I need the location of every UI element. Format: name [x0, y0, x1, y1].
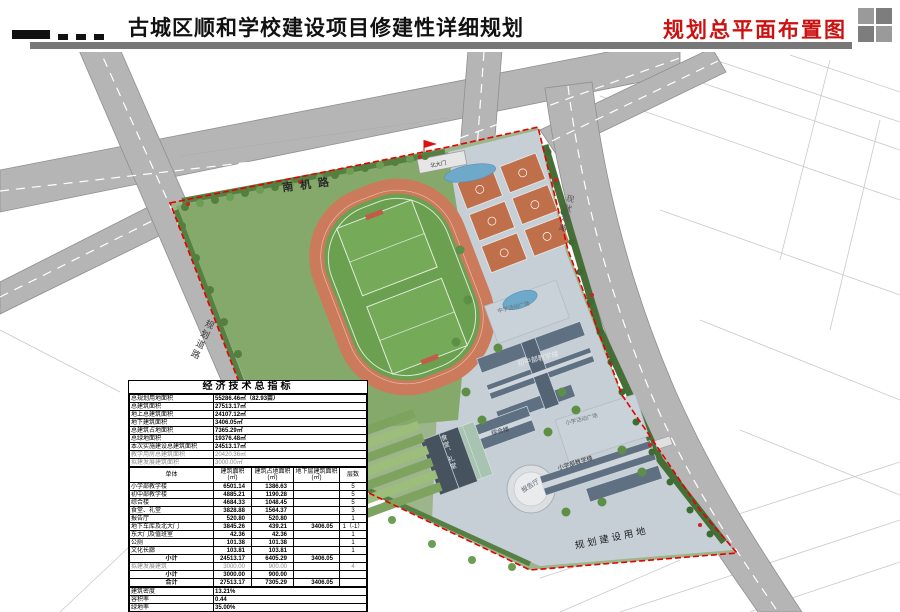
- header-corner-square: [876, 8, 892, 24]
- drawing-title: 规划总平面布置图: [663, 14, 847, 44]
- indicator-row: 地上总建筑面积 24107.12㎡: [130, 411, 367, 419]
- footer-row: 容积率 0.44: [130, 596, 367, 604]
- indicator-row: 总绿地面积 19376.48㎡: [130, 435, 367, 443]
- building-row: 食堂、礼堂 3828.88 1564.37 3: [130, 507, 367, 515]
- building-row: 综合楼 4684.33 1048.45 5: [130, 499, 367, 507]
- building-row: 初中部教学楼 4885.21 1190.28 5: [130, 491, 367, 499]
- header-corner-square: [876, 26, 892, 42]
- header-deco-square: [58, 34, 68, 40]
- buildings-header-row: 单体 建筑面积 (㎡) 建筑占地面积 (㎡) 地下层建筑面积 (㎡) 层数: [130, 468, 367, 483]
- indicator-row: 总建筑占地面积 7365.29㎡: [130, 427, 367, 435]
- indicator-row: 拟建发展建筑面积 3000.00㎡: [130, 459, 367, 467]
- header-deco-bar: [12, 30, 50, 39]
- header-corner-square: [858, 8, 874, 24]
- table-title: 经济技术总指标: [129, 381, 367, 394]
- header-corner-square: [858, 26, 874, 42]
- footer-row: 建筑密度 13.21%: [130, 588, 367, 596]
- road-west-branch: [0, 206, 163, 314]
- indicator-row: 本次实施建设总建筑面积 24513.17㎡: [130, 443, 367, 451]
- indicator-row: 教学用房总建筑面积 20420.36㎡: [130, 451, 367, 459]
- indicator-row: 地下建筑面积 3406.05㎡: [130, 419, 367, 427]
- header-deco-square: [94, 34, 104, 40]
- building-row: 小学部教学楼 6501.14 1386.63 5: [130, 483, 367, 491]
- footer-table: 建筑密度 13.21% 容积率 0.44 绿地率 35.00% 停车位 173个…: [129, 587, 367, 612]
- building-row: 报告厅 520.80 520.80 1: [130, 515, 367, 523]
- building-row: 文化长廊 103.81 103.81 1: [130, 547, 367, 555]
- indicator-row: 总建筑面积 27513.17㎡: [130, 403, 367, 411]
- header-deco-square: [76, 34, 86, 40]
- footer-row: 绿地率 35.00%: [130, 604, 367, 612]
- building-row: 公厕 101.38 101.38 1: [130, 539, 367, 547]
- project-title: 古城区顺和学校建设项目修建性详细规划: [128, 12, 528, 42]
- building-row: 小计 3000.00 900.00: [130, 571, 367, 579]
- building-row: 小计 24513.17 6405.29 3406.05: [130, 555, 367, 563]
- economic-indicators-table: 经济技术总指标 总规划用地面积 55286.46㎡（82.93亩） 总建筑面积 …: [128, 380, 368, 612]
- building-row: 东大门及值班室 42.36 42.36 1: [130, 531, 367, 539]
- indicator-row: 总规划用地面积 55286.46㎡（82.93亩）: [130, 395, 367, 403]
- buildings-table: 单体 建筑面积 (㎡) 建筑占地面积 (㎡) 地下层建筑面积 (㎡) 层数 小学…: [129, 467, 367, 587]
- building-row: 地下车库及北大门 3845.26 439.21 3406.05 1（-1）: [130, 523, 367, 531]
- building-row: 拟建发展建筑 3000.00 900.00 4: [130, 563, 367, 571]
- building-row: 合计 27513.17 7305.29 3406.05: [130, 579, 367, 587]
- planning-sheet: 古城区顺和学校建设项目修建性详细规划 规划总平面布置图 南机路 规划道路 现状道…: [0, 0, 900, 612]
- indicator-table: 总规划用地面积 55286.46㎡（82.93亩） 总建筑面积 27513.17…: [129, 394, 367, 467]
- title-bar: 古城区顺和学校建设项目修建性详细规划 规划总平面布置图: [0, 0, 900, 52]
